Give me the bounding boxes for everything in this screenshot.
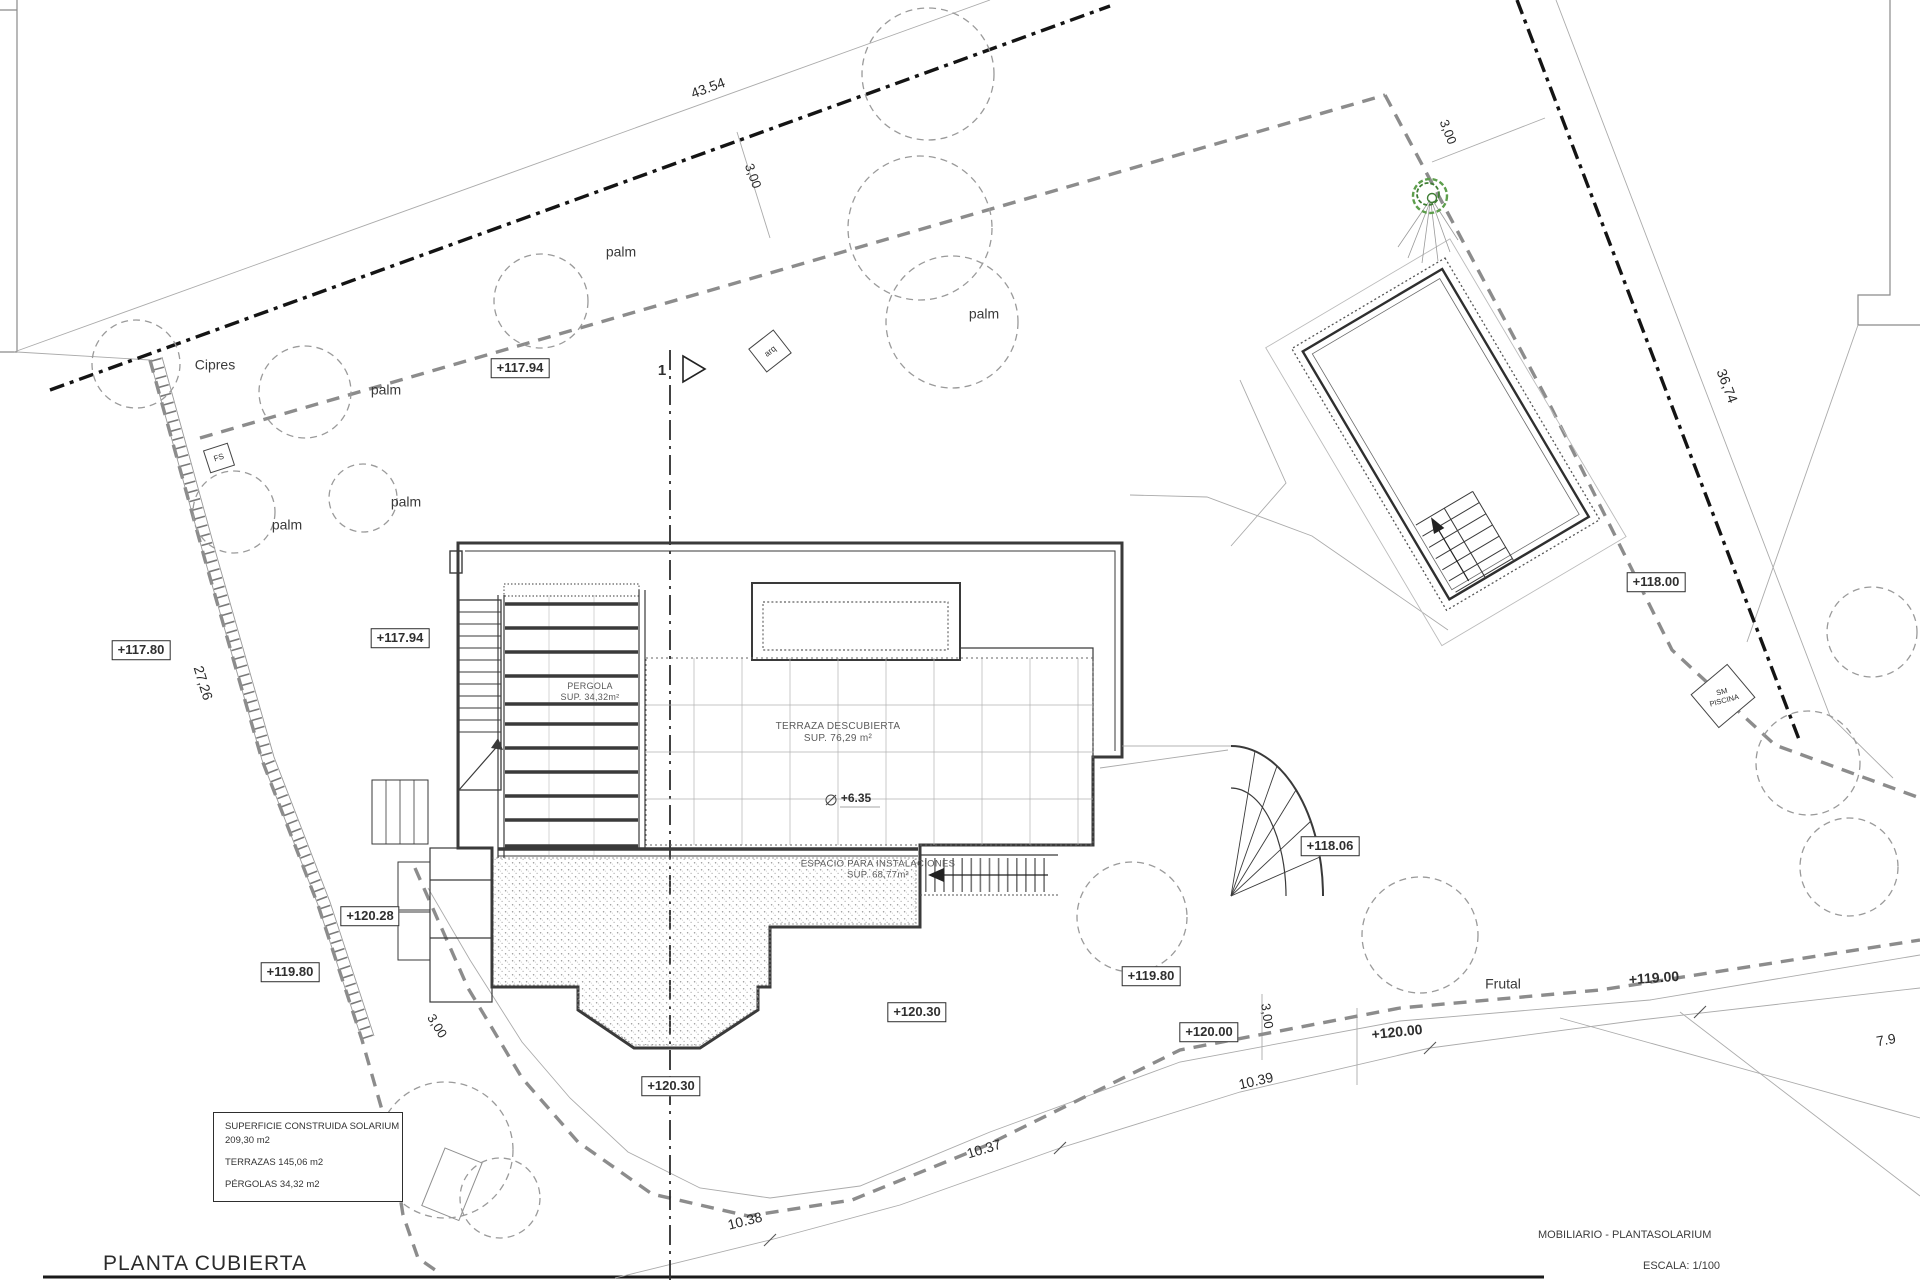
veg-palm-3: palm <box>969 306 999 323</box>
section-marker-1: 1 <box>658 362 666 380</box>
label-layer: 43.543,0036,743,0027,263,003,0010.3810.3… <box>0 0 1920 1280</box>
dim-3-00-bottomleft: 3,00 <box>424 1011 451 1041</box>
veg-frutal: Frutal <box>1485 976 1521 993</box>
scale-note: ESCALA: 1/100 <box>1643 1260 1720 1272</box>
tag-sm-piscina: SM PISCINA <box>1690 664 1755 729</box>
elev-118-06: +118.06 <box>1301 836 1360 856</box>
elev-120-28: +120.28 <box>340 906 399 926</box>
elev-120-30-b: +120.30 <box>641 1076 700 1096</box>
elev-120-00-boxed: +120.00 <box>1179 1022 1238 1042</box>
tag-fs: FS <box>203 443 235 474</box>
legend-line-3: TERRAZAS 145,06 m2 <box>225 1157 323 1168</box>
dim-7-9: 7.9 <box>1875 1030 1897 1050</box>
dim-3-00-top: 3,00 <box>741 161 764 190</box>
dim-10-39: 10.39 <box>1237 1069 1275 1093</box>
elev-120-00-plain: +120.00 <box>1371 1021 1423 1043</box>
elev-117-94-b: +117.94 <box>371 628 430 648</box>
veg-palm-1: palm <box>371 382 401 399</box>
dim-10-38: 10.38 <box>726 1209 764 1234</box>
dim-10-37: 10.37 <box>965 1136 1003 1162</box>
area-terraza: TERRAZA DESCUBIERTA SUP. 76,29 m² <box>776 721 901 745</box>
elev-117-94-a: +117.94 <box>491 358 550 378</box>
elev-117-80: +117.80 <box>112 640 171 660</box>
dim-27-26: 27,26 <box>190 664 216 702</box>
veg-cipres: Cipres <box>195 357 235 374</box>
veg-palm-5: palm <box>272 517 302 534</box>
veg-palm-4: palm <box>391 494 421 511</box>
dim-36-74: 36,74 <box>1713 367 1741 406</box>
legend-line-4: PÉRGOLAS 34,32 m2 <box>225 1179 320 1190</box>
drawing-title: PLANTA CUBIERTA <box>103 1252 307 1276</box>
elev-118-00: +118.00 <box>1627 572 1686 592</box>
dim-3-00-topright: 3,00 <box>1436 117 1460 146</box>
area-pergola: PERGOLA SUP. 34,32m² <box>561 681 620 703</box>
elev-119-80-left: +119.80 <box>261 962 320 982</box>
area-espacio: ESPACIO PARA INSTALACIONES SUP. 68,77m² <box>801 859 956 882</box>
project-name: MOBILIARIO - PLANTASOLARIUM <box>1538 1229 1711 1241</box>
elev-119-00-plain: +119.00 <box>1628 968 1679 988</box>
elev-119-80-right: +119.80 <box>1122 966 1181 986</box>
legend-line-1: SUPERFICIE CONSTRUIDA SOLARIUM <box>225 1121 399 1132</box>
site-plan-sheet: 43.543,0036,743,0027,263,003,0010.3810.3… <box>0 0 1920 1280</box>
veg-palm-2: palm <box>606 244 636 261</box>
tag-arq: arq <box>748 329 792 372</box>
dim-43-54: 43.54 <box>689 74 728 102</box>
legend-line-2: 209,30 m2 <box>225 1135 270 1146</box>
elev-120-30-a: +120.30 <box>887 1002 946 1022</box>
dim-3-00-bottomcenter: 3,00 <box>1258 1002 1277 1029</box>
elev-6-35: +6.35 <box>841 791 871 805</box>
legend-box: SUPERFICIE CONSTRUIDA SOLARIUM 209,30 m2… <box>213 1112 403 1202</box>
